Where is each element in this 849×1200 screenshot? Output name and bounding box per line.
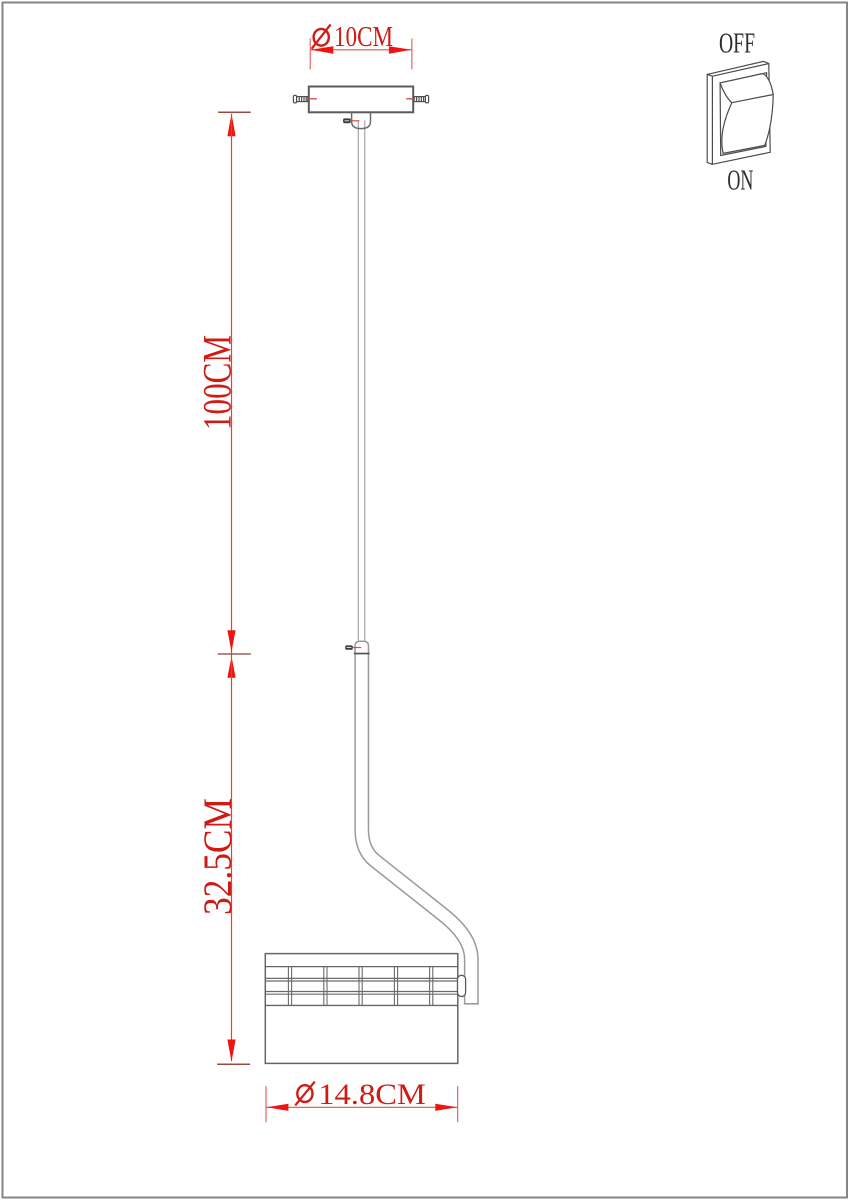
svg-text:100CM: 100CM (195, 335, 240, 430)
svg-text:ON: ON (727, 166, 753, 197)
svg-text:32.5CM: 32.5CM (195, 798, 240, 915)
svg-text:10CM: 10CM (334, 21, 393, 53)
svg-text:14.8CM: 14.8CM (318, 1078, 426, 1111)
svg-text:OFF: OFF (719, 29, 755, 60)
